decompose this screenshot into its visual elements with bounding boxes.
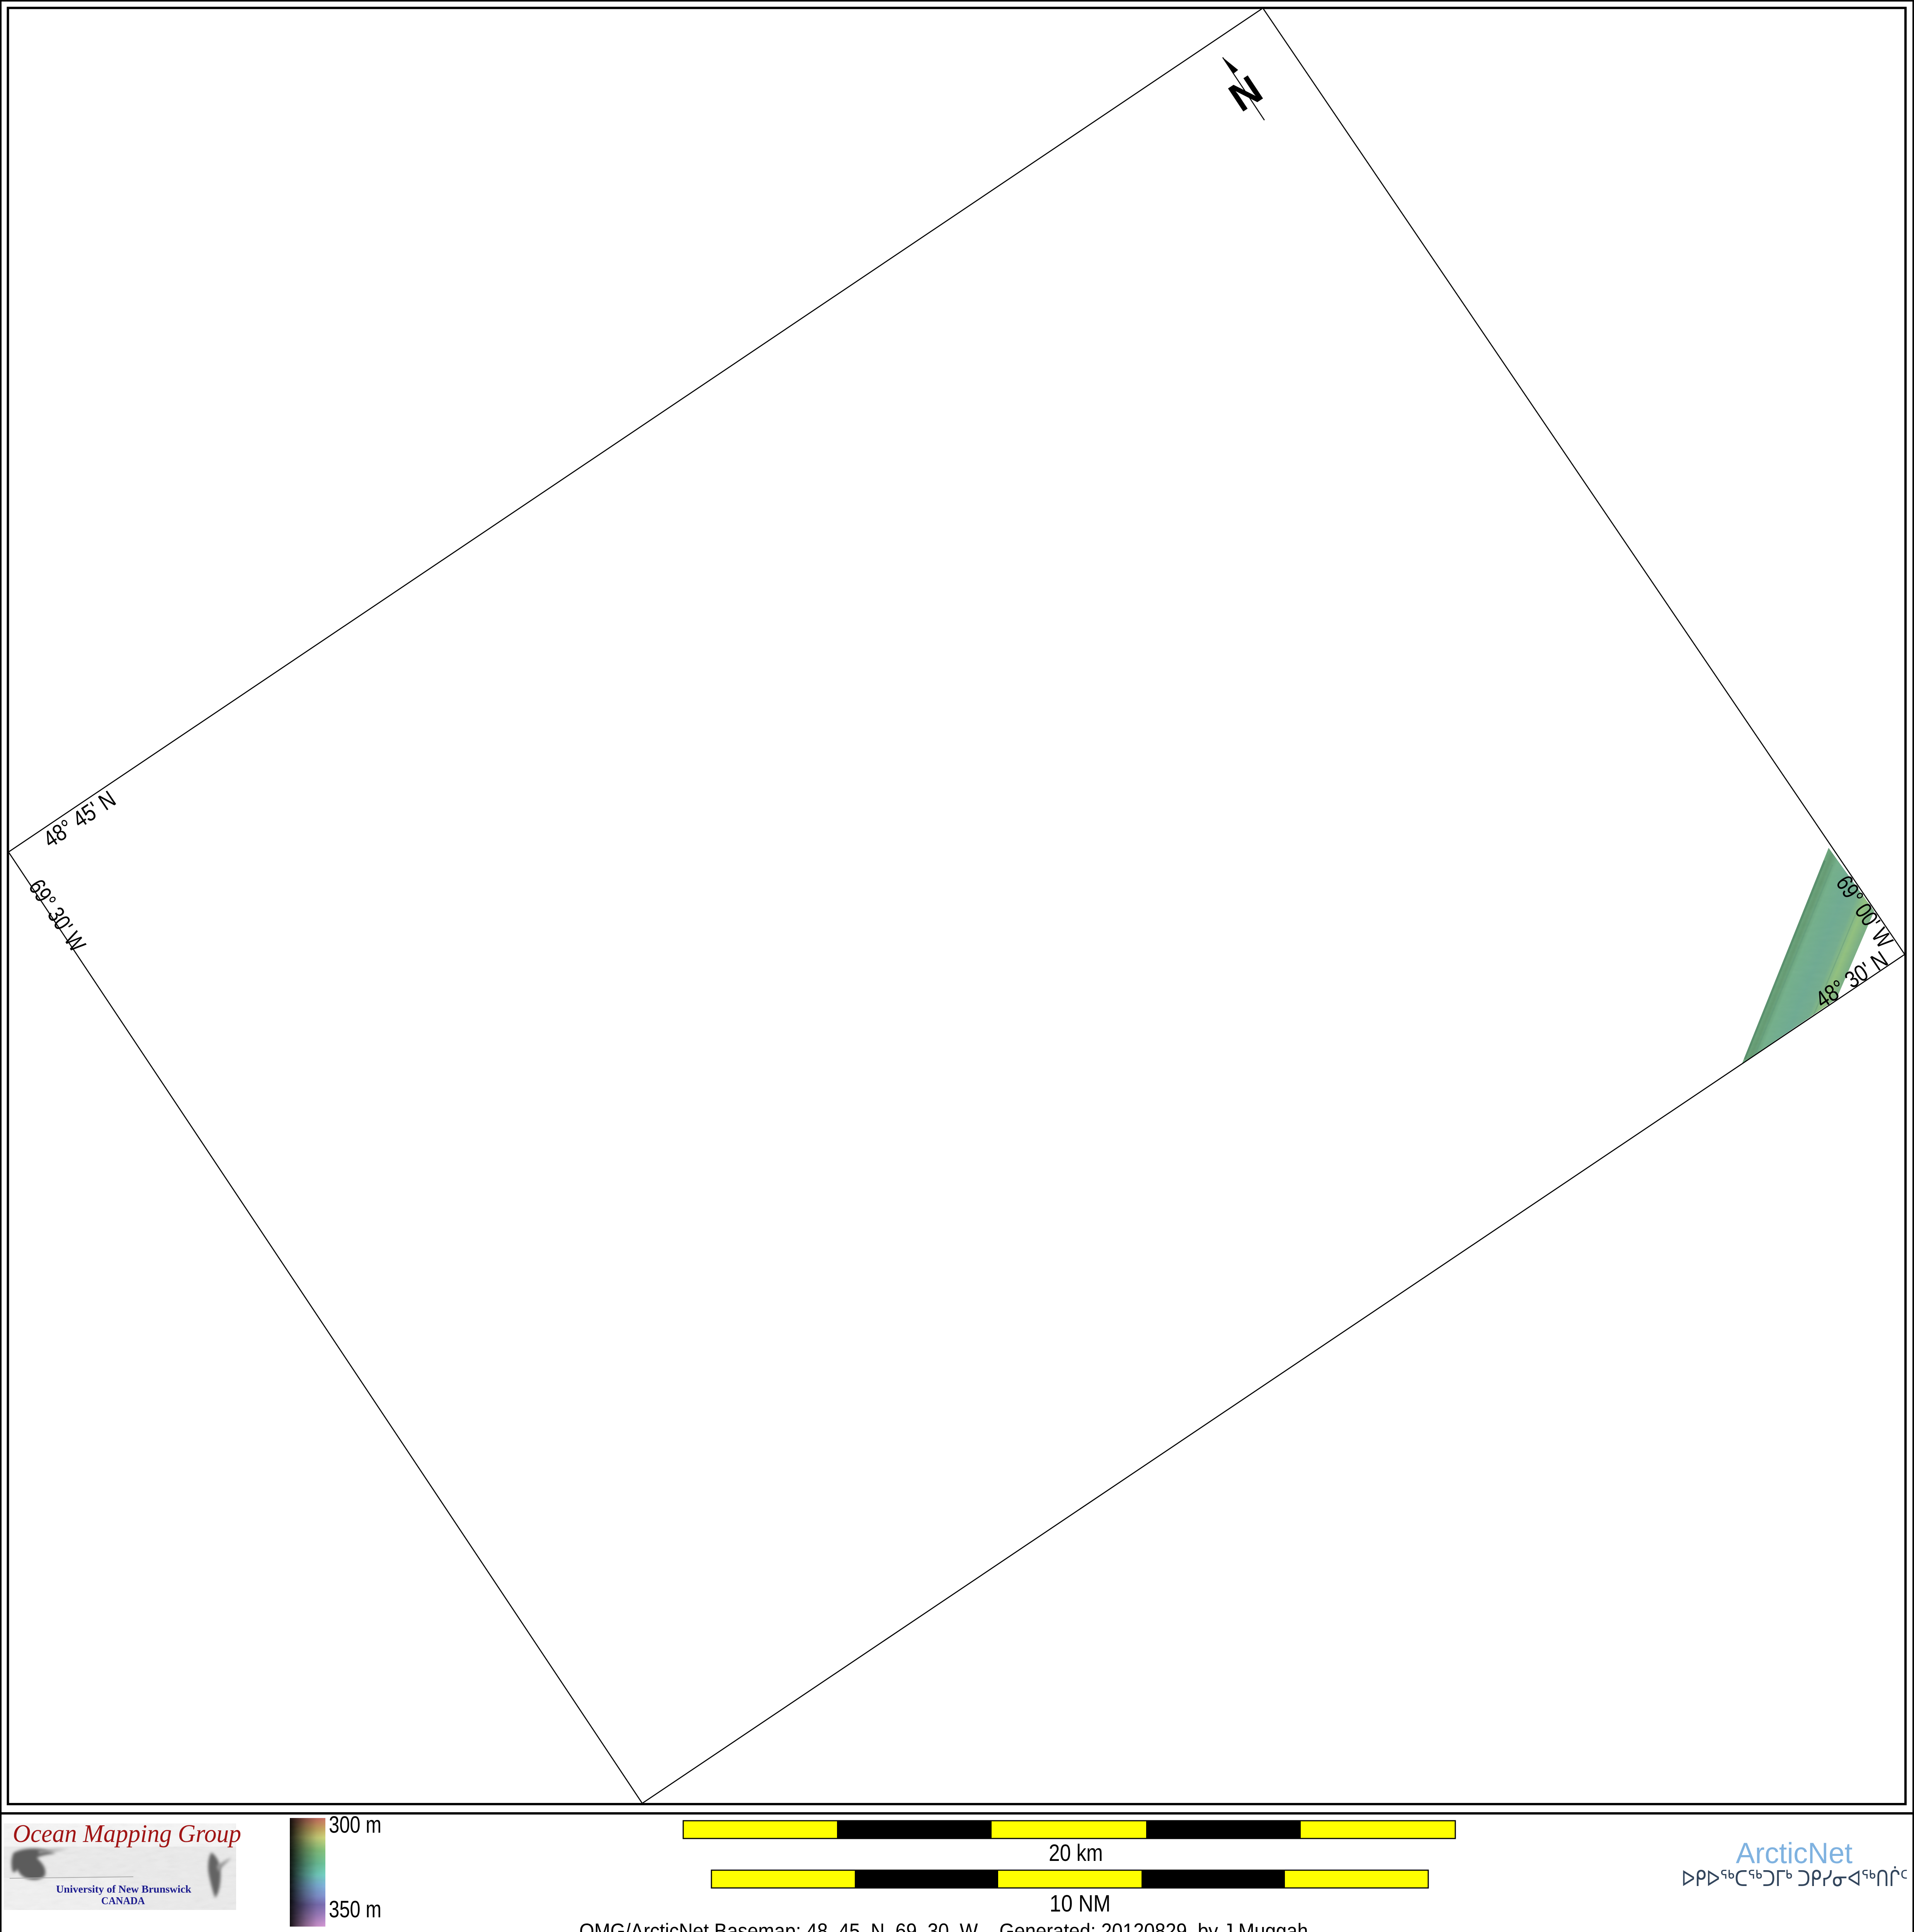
svg-text:CANADA: CANADA	[101, 1895, 145, 1906]
svg-text:Ocean Mapping Group: Ocean Mapping Group	[13, 1820, 241, 1848]
svg-text:University of New Brunswick: University of New Brunswick	[56, 1883, 191, 1895]
svg-text:350 m: 350 m	[329, 1896, 381, 1922]
svg-text:ArcticNet: ArcticNet	[1736, 1837, 1853, 1870]
svg-text:ᐅᑭᐅᖅᑕᖅᑐᒥᒃ ᑐᑭᓯᓂᐊᖅᑎᒌᑦ: ᐅᑭᐅᖅᑕᖅᑐᒥᒃ ᑐᑭᓯᓂᐊᖅᑎᒌᑦ	[1681, 1866, 1908, 1891]
svg-text:20 km: 20 km	[1049, 1840, 1103, 1866]
svg-text:10 NM: 10 NM	[1050, 1890, 1111, 1917]
svg-text:OMG/ArcticNet Basemap: 48_45_N: OMG/ArcticNet Basemap: 48_45_N_69_30_W G…	[579, 1919, 1308, 1932]
svg-text:300 m: 300 m	[329, 1811, 381, 1838]
